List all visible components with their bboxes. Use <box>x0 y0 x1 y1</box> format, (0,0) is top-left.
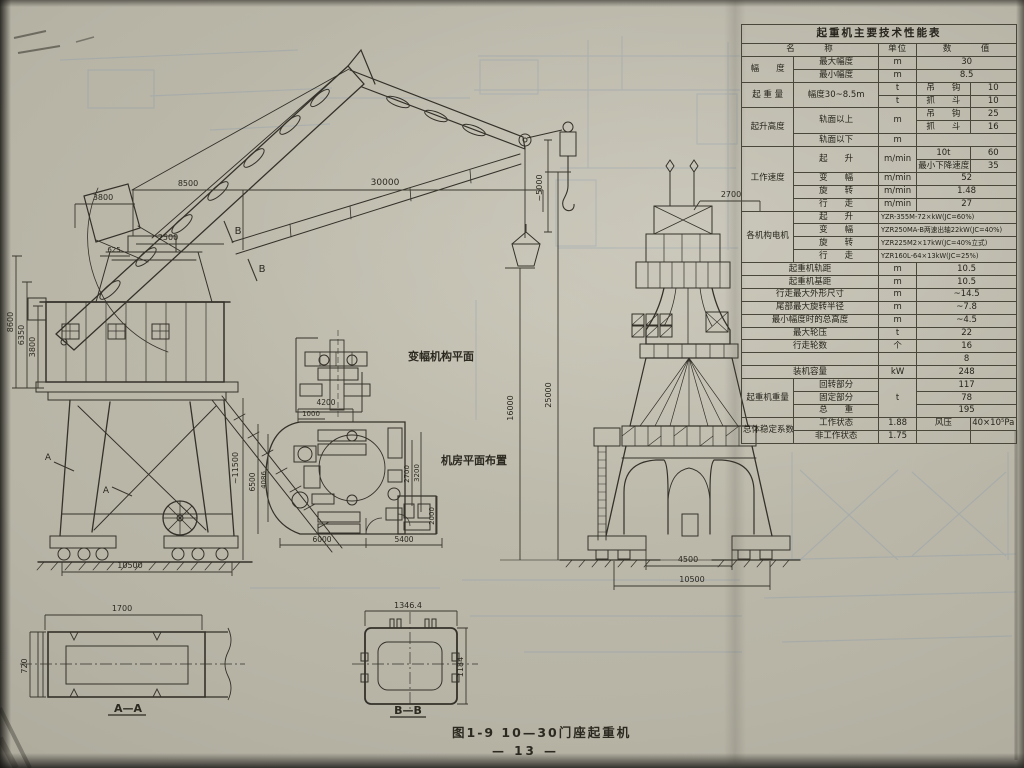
stability-wind-value: 40×10⁵Pa <box>970 417 1016 430</box>
stability-group: 总体稳定系数 <box>742 417 794 443</box>
capacity-grab-label: 抓 斗 <box>917 95 970 108</box>
travel-wheels-label: 行走轮数 <box>742 340 879 353</box>
dim-side-625: 625 <box>107 246 120 254</box>
height-below-unit: m <box>878 134 916 147</box>
radius-max-value: 30 <box>917 56 1017 69</box>
stability-nonworking-value: 1.75 <box>878 430 916 443</box>
height-hook-label: 吊 钩 <box>917 108 970 121</box>
installed-power-value: 248 <box>917 366 1017 379</box>
dim-plan-3200: 3200 <box>413 464 421 482</box>
dim-side-10500: 10500 <box>117 561 142 570</box>
speed-luffing-value: 52 <box>917 172 1017 185</box>
motors-hoist-label: 起 升 <box>794 211 879 224</box>
wheel-base-label: 起重机基距 <box>742 276 879 289</box>
travel-outline-label: 行走最大外形尺寸 <box>742 288 879 301</box>
label-section-aa: A—A <box>114 702 143 715</box>
weight-group: 起重机重量 <box>742 379 794 418</box>
max-wheel-load-label: 最大轮压 <box>742 327 879 340</box>
speed-hoist-sub2-label: 最小下降速度 <box>917 160 970 173</box>
motors-travel-label: 行 走 <box>794 250 879 263</box>
dim-side-6350: 6350 <box>17 325 26 345</box>
dim-side-3800b: 3800 <box>28 337 37 357</box>
hook-and-grab <box>512 122 576 266</box>
installed-power-label: 装机容量 <box>742 366 879 379</box>
dim-center-5000: ~5000 <box>535 174 544 201</box>
weight-unit: t <box>878 379 916 418</box>
weight-fixed-label: 固定部分 <box>794 392 879 405</box>
section-a-a <box>20 628 245 700</box>
section-marker-a1: A <box>45 453 52 463</box>
dim-plan-5400: 5400 <box>394 535 413 544</box>
dim-plan-2700: 2700 <box>403 465 411 483</box>
capacity-grab-value: 10 <box>970 95 1016 108</box>
section-marker-b2: B <box>259 264 266 275</box>
label-luffing-plan: 变幅机构平面 <box>408 349 474 363</box>
weight-slewing-value: 117 <box>917 379 1017 392</box>
weight-fixed-value: 78 <box>917 392 1017 405</box>
speed-hoist-sub1-value: 60 <box>970 147 1016 160</box>
dimension-lines <box>12 140 800 717</box>
weight-total-value: 195 <box>917 404 1017 417</box>
tail-radius-value: ~7.8 <box>917 301 1017 314</box>
max-wheel-load-unit: t <box>878 327 916 340</box>
rocker-arm <box>152 68 521 254</box>
radius-min-label: 最小幅度 <box>794 69 879 82</box>
weight-total-label: 总 重 <box>794 404 879 417</box>
dim-side-11500: ~11500 <box>231 452 240 484</box>
speed-luffing-unit: m/min <box>878 172 916 185</box>
speed-hoist-unit: m/min <box>878 147 916 173</box>
dim-plan-2000: 2000 <box>428 507 436 525</box>
dim-side-30000: 30000 <box>371 178 400 188</box>
min-radius-height-label: 最小幅度时的总高度 <box>742 314 879 327</box>
height-below-label: 轨面以下 <box>794 134 879 147</box>
track-gauge-unit: m <box>878 263 916 276</box>
travel-bogies <box>37 536 252 570</box>
dim-plan-4200: 4200 <box>316 398 335 407</box>
installed-power-unit: kW <box>878 366 916 379</box>
front-mast <box>636 160 730 288</box>
capacity-hook-value: 10 <box>970 82 1016 95</box>
speed-hoist-sub1-label: 10t <box>917 147 970 160</box>
capacity-unit2: t <box>878 95 916 108</box>
dim-side-8500: 8500 <box>178 179 198 188</box>
tail-radius-label: 尾部最大旋转半径 <box>742 301 879 314</box>
spec-table: 起重机主要技术性能表 名 称 单位 数 值 幅 度 最大幅度 m 30 最小幅度… <box>741 24 1017 443</box>
stability-nonworking-label: 非工作状态 <box>794 430 879 443</box>
dim-bb-1346: 1346.4 <box>394 601 422 610</box>
dim-center-25000: 25000 <box>544 382 553 407</box>
page-number: — 13 — <box>492 744 559 758</box>
travel-wheels-value: 16 <box>917 340 1017 353</box>
travel-outline-unit: m <box>878 288 916 301</box>
travel-outline-value: ~14.5 <box>917 288 1017 301</box>
radius-group: 幅 度 <box>742 56 794 82</box>
motors-luffing-value: YZR250MA-B两速出轴22kW(JC=40%) <box>878 224 1016 237</box>
dim-plan-1000: 1000 <box>302 410 320 418</box>
portal-top <box>622 426 756 446</box>
figure-caption: 图1-9 10—30门座起重机 <box>452 722 631 741</box>
radius-min-value: 8.5 <box>917 69 1017 82</box>
min-radius-height-value: ~4.5 <box>917 314 1017 327</box>
dim-plan-6500: 6500 <box>248 472 257 491</box>
capacity-sub-label: 幅度30~8.5m <box>794 82 879 108</box>
travel-wheels-unit: 个 <box>878 340 916 353</box>
scanned-drawing-page: 3800 8500 30000 2500 625 8600 6350 3800 … <box>0 0 1024 768</box>
min-radius-height-unit: m <box>878 314 916 327</box>
capacity-unit1: t <box>878 82 916 95</box>
speed-luffing-label: 变 幅 <box>794 172 879 185</box>
header-unit: 单位 <box>878 44 916 57</box>
dim-plan-4086: 4086 <box>260 471 268 489</box>
speed-group: 工作速度 <box>742 147 794 211</box>
height-grab-value: 16 <box>970 121 1016 134</box>
track-gauge-value: 10.5 <box>917 263 1017 276</box>
motors-slewing-label: 旋 转 <box>794 237 879 250</box>
track-gauge-label: 起重机轨距 <box>742 263 879 276</box>
speed-travel-unit: m/min <box>878 198 916 211</box>
motors-travel-value: YZR160L-64×13kW(JC=25%) <box>878 250 1016 263</box>
dim-plan-6000: 6000 <box>312 535 331 544</box>
height-below-value <box>917 134 1017 147</box>
speed-slewing-value: 1.48 <box>917 185 1017 198</box>
slewing-skirt <box>630 358 748 426</box>
label-machine-room-plan: 机房平面布置 <box>441 453 507 467</box>
max-wheel-load-value: 22 <box>917 327 1017 340</box>
weight-slewing-label: 回转部分 <box>794 379 879 392</box>
dim-aa-1700: 1700 <box>112 604 132 613</box>
stability-working-label: 工作状态 <box>794 417 879 430</box>
stability-empty2 <box>970 430 1016 443</box>
tail-radius-unit: m <box>878 301 916 314</box>
front-portal <box>594 428 772 540</box>
dim-side-3800: 3800 <box>93 193 113 202</box>
counterweight-lever <box>84 69 349 262</box>
radius-max-unit: m <box>878 56 916 69</box>
dim-side-8600: 8600 <box>6 312 15 332</box>
dim-front-4500: 4500 <box>678 555 698 564</box>
height-hook-value: 25 <box>970 108 1016 121</box>
capacity-hook-label: 吊 钩 <box>917 82 970 95</box>
stability-wind-label: 风压 <box>917 417 970 430</box>
label-section-bb: B—B <box>394 704 422 717</box>
wheel-base-unit: m <box>878 276 916 289</box>
dim-bb-1184: 1184 <box>456 657 465 677</box>
section-marker-b1: B <box>235 226 242 237</box>
stability-working-value: 1.88 <box>878 417 916 430</box>
speed-travel-label: 行 走 <box>794 198 879 211</box>
header-value: 数 值 <box>917 44 1017 57</box>
dim-front-10500: 10500 <box>679 575 704 584</box>
dim-aa-720: 720 <box>20 658 29 673</box>
machinery-house <box>28 298 238 400</box>
front-house <box>632 288 738 358</box>
tail-swing-arc <box>88 188 168 352</box>
radius-max-label: 最大幅度 <box>794 56 879 69</box>
dim-front-2700: 2700 <box>721 190 741 199</box>
motors-hoist-value: YZR-355M-72×kW(JC=60%) <box>878 211 1016 224</box>
jib-bridle <box>350 70 531 149</box>
spec-table-title: 起重机主要技术性能表 <box>742 25 1017 44</box>
section-marker-a2: A <box>103 486 110 496</box>
travel-wheels2-label <box>742 353 879 366</box>
capacity-group: 起 重 量 <box>742 82 794 108</box>
travel-wheels2-unit <box>878 353 916 366</box>
radius-min-unit: m <box>878 69 916 82</box>
height-grab-label: 抓 斗 <box>917 121 970 134</box>
motors-slewing-value: YZR225M2×17kW(JC=40%立式) <box>878 237 1016 250</box>
dim-center-16000: 16000 <box>506 395 515 420</box>
speed-hoist-label: 起 升 <box>794 147 879 173</box>
speed-hoist-sub2-value: 35 <box>970 160 1016 173</box>
height-group: 起升高度 <box>742 108 794 147</box>
travel-wheels2-value: 8 <box>917 353 1017 366</box>
height-above-label: 轨面以上 <box>794 108 879 134</box>
motors-group: 各机构电机 <box>742 211 794 263</box>
header-name: 名 称 <box>742 44 879 57</box>
wheel-base-value: 10.5 <box>917 276 1017 289</box>
speed-slewing-label: 旋 转 <box>794 185 879 198</box>
dim-side-2500: 2500 <box>158 233 178 242</box>
motors-luffing-label: 变 幅 <box>794 224 879 237</box>
speed-slewing-unit: m/min <box>878 185 916 198</box>
height-above-unit: m <box>878 108 916 134</box>
speed-travel-value: 27 <box>917 198 1017 211</box>
stability-empty1 <box>917 430 970 443</box>
